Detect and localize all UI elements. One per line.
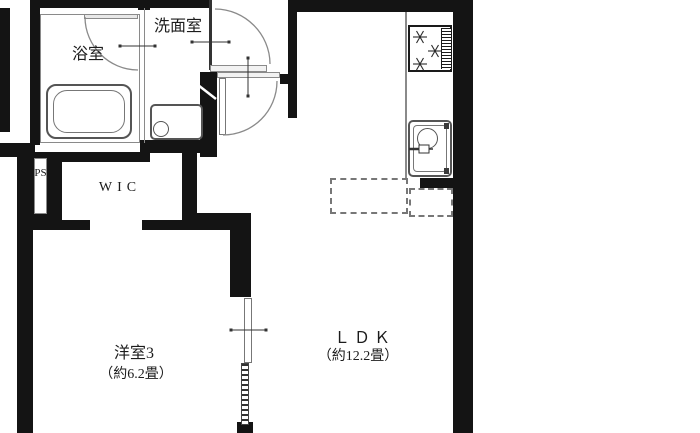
washroom-label: 洗面室 [154,12,202,36]
wic-label: WIC [99,180,141,196]
stove-burner-icon [413,58,427,70]
bathroom-label: 浴室 [72,40,104,64]
stove-burner-icon [428,45,442,57]
hall-door-arc [223,81,277,135]
door-indicator [120,42,266,330]
pipe-space-label: PS [34,166,47,180]
entry-door-arc [215,9,270,64]
ldk-size: （約12.2畳） [318,345,399,365]
faucet-icon [409,123,449,174]
floor-plan: 浴室 洗面室 WIC PS 洋室3 （約6.2畳） ＬＤＫ （約12.2畳） [0,0,700,433]
western-room-size: （約6.2畳） [99,363,173,383]
stove-burner-icon [413,31,427,43]
western-room-label: 洋室3 [114,339,154,363]
entry-door-diagonal [198,85,216,99]
